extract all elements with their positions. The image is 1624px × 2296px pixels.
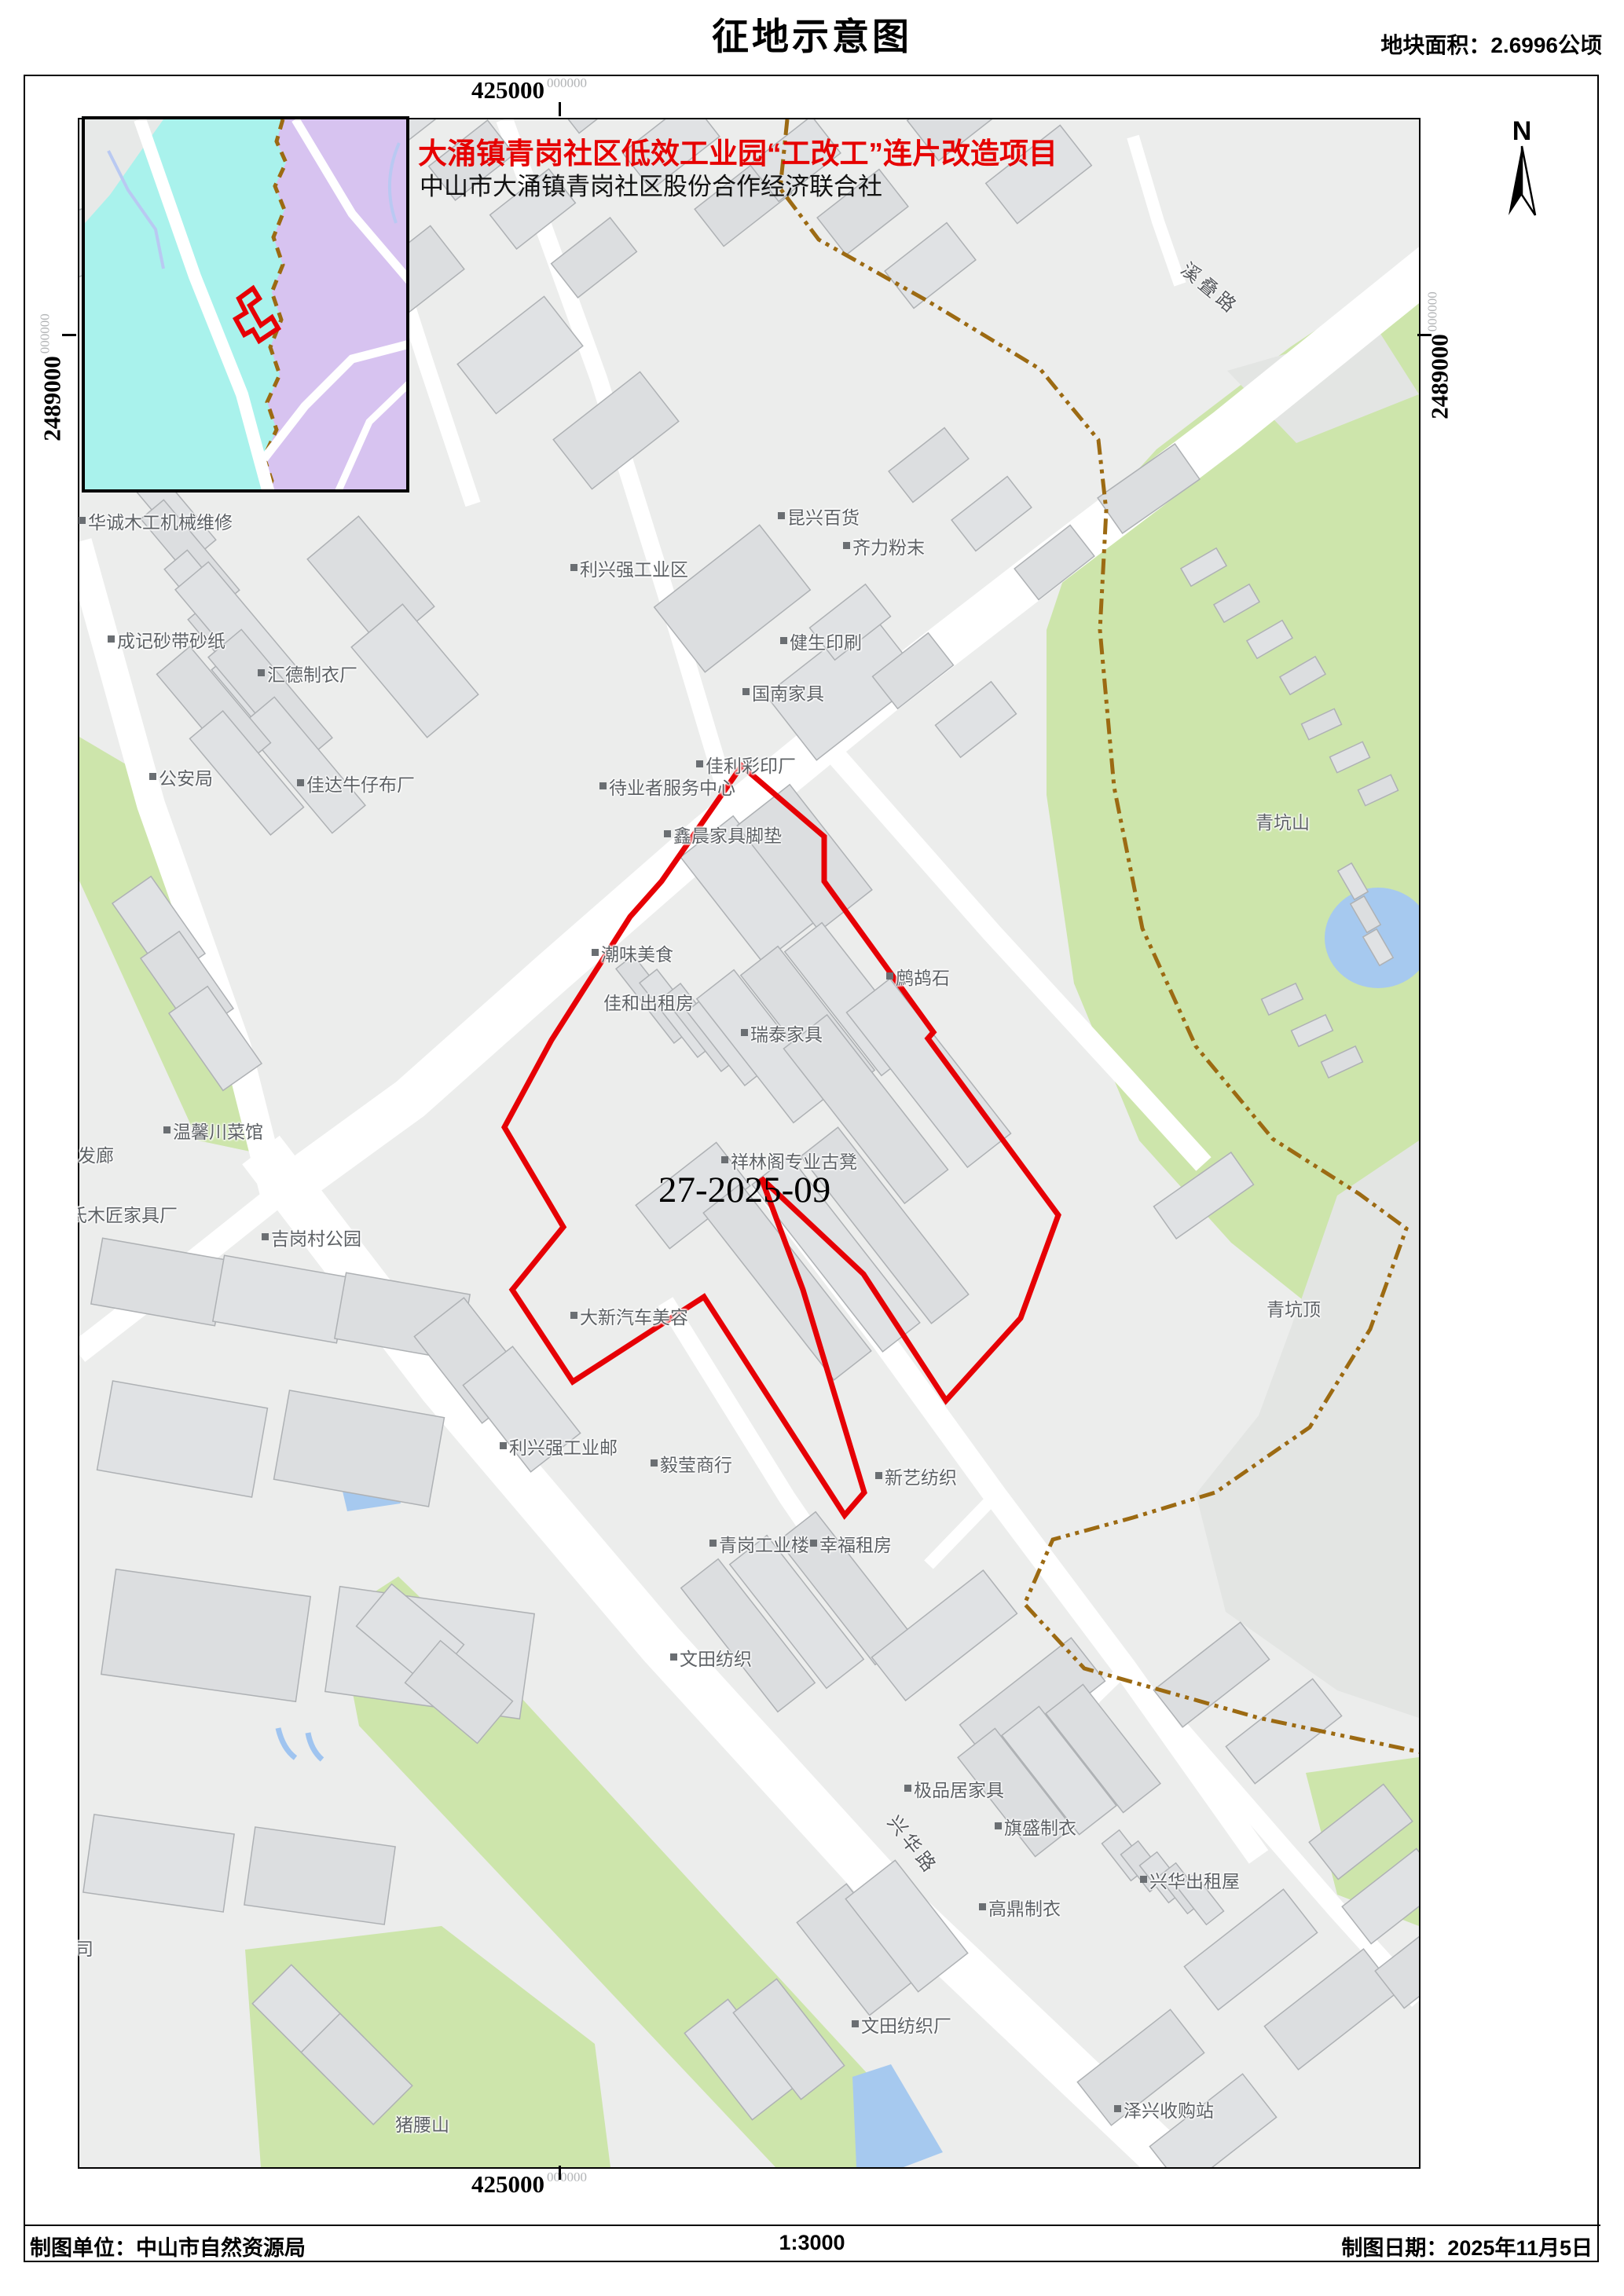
grid-tick-top [559, 102, 561, 116]
grid-label-bottom: 425000000000 [471, 2170, 587, 2199]
grid-label-top: 425000000000 [471, 75, 587, 104]
grid-tick-bottom [559, 2166, 561, 2180]
footer-divider [24, 2225, 1600, 2226]
grid-tick-right [1417, 334, 1432, 336]
north-arrow: N [1499, 118, 1545, 221]
footer-bar: 制图单位：中山市自然资源局 1:3000 制图日期：2025年11月5日 [24, 2229, 1600, 2262]
grid-tick-left [62, 334, 76, 336]
parcel-area-note: 地块面积：2.6996公顷 [1380, 28, 1602, 60]
inset-map-graphic [85, 119, 409, 493]
project-name: 大涌镇青岗社区低效工业园“工改工”连片改造项目 [418, 130, 1058, 172]
grid-label-left: 2489000000000 [38, 291, 67, 464]
parcel-number-label: 27-2025-09 [658, 1169, 830, 1211]
footer-date: 制图日期：2025年11月5日 [1341, 2231, 1593, 2261]
map-sheet: 征地示意图 地块面积：2.6996公顷 华诚木工机械维修成记砂带砂纸汇德制衣厂公… [0, 0, 1624, 2296]
project-owner: 中山市大涌镇青岗社区股份合作经济联合社 [420, 167, 882, 202]
north-arrow-icon [1507, 145, 1537, 217]
grid-label-right: 2489000000000 [1425, 269, 1454, 442]
north-label: N [1499, 118, 1545, 145]
inset-locator-map [82, 116, 409, 493]
